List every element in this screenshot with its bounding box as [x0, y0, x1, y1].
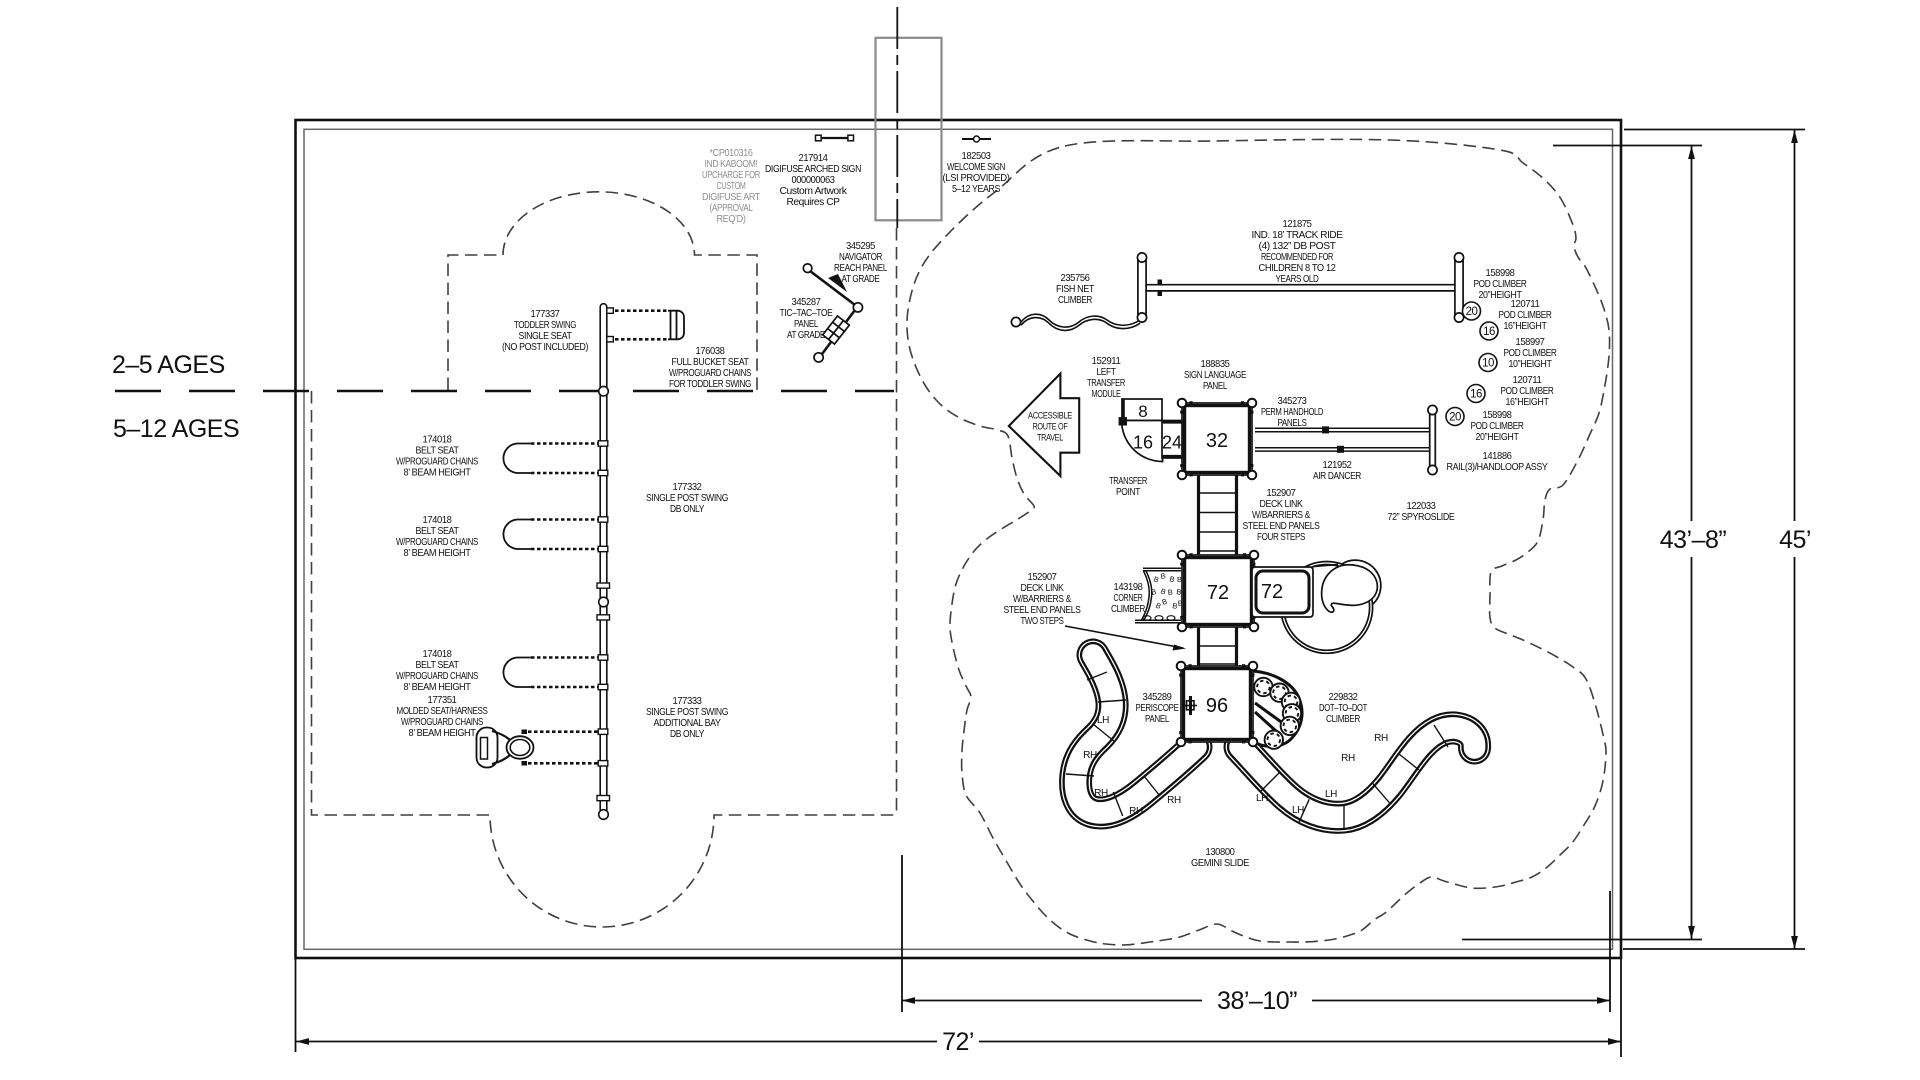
svg-text:TIC–TAC–TOE: TIC–TAC–TOE: [780, 308, 833, 319]
svg-text:2–5 AGES: 2–5 AGES: [112, 351, 225, 379]
svg-text:8’ BEAM HEIGHT: 8’ BEAM HEIGHT: [409, 728, 477, 739]
svg-text:RH: RH: [1374, 733, 1388, 744]
svg-text:217914: 217914: [799, 153, 829, 164]
svg-text:DECK LINK: DECK LINK: [1260, 499, 1303, 510]
svg-text:16”HEIGHT: 16”HEIGHT: [1504, 321, 1548, 332]
svg-text:ADDITIONAL BAY: ADDITIONAL BAY: [654, 718, 721, 729]
svg-text:16”HEIGHT: 16”HEIGHT: [1506, 397, 1550, 408]
svg-text:32: 32: [1206, 430, 1228, 452]
svg-text:PANEL: PANEL: [1145, 714, 1170, 725]
svg-text:FOR TODDLER SWING: FOR TODDLER SWING: [669, 379, 751, 390]
svg-text:POD CLIMBER: POD CLIMBER: [1504, 348, 1558, 359]
svg-text:YEARS OLD: YEARS OLD: [1276, 274, 1319, 285]
svg-text:RH: RH: [1083, 750, 1097, 761]
svg-text:W/BARRIERS &: W/BARRIERS &: [1013, 594, 1071, 605]
svg-text:POD CLIMBER: POD CLIMBER: [1474, 279, 1528, 290]
svg-text:PANEL: PANEL: [794, 319, 819, 330]
svg-text:FULL BUCKET SEAT: FULL BUCKET SEAT: [672, 357, 750, 368]
svg-text:143198: 143198: [1114, 582, 1144, 593]
svg-text:8’ BEAM HEIGHT: 8’ BEAM HEIGHT: [404, 468, 472, 479]
svg-text:188835: 188835: [1201, 359, 1231, 370]
svg-text:Custom Artwork: Custom Artwork: [780, 186, 848, 197]
svg-text:SINGLE POST SWING: SINGLE POST SWING: [646, 707, 728, 718]
svg-text:158998: 158998: [1483, 410, 1513, 421]
svg-text:000000063: 000000063: [792, 175, 836, 186]
svg-text:5–12 YEARS: 5–12 YEARS: [952, 184, 1000, 195]
svg-text:W/PROGUARD CHAINS: W/PROGUARD CHAINS: [396, 671, 478, 682]
svg-text:NAVIGATOR: NAVIGATOR: [839, 252, 883, 263]
svg-text:16: 16: [1470, 389, 1482, 401]
svg-text:152911: 152911: [1092, 356, 1122, 367]
svg-text:RAIL(3)/HANDLOOP ASSY: RAIL(3)/HANDLOOP ASSY: [1447, 462, 1548, 473]
svg-text:20: 20: [1449, 412, 1461, 424]
svg-text:B: B: [1167, 588, 1173, 597]
svg-text:TRANSFER: TRANSFER: [1087, 378, 1126, 389]
svg-text:SINGLE POST SWING: SINGLE POST SWING: [646, 493, 728, 504]
svg-text:SIGN LANGUAGE: SIGN LANGUAGE: [1184, 370, 1246, 381]
svg-text:5–12 AGES: 5–12 AGES: [113, 415, 239, 443]
svg-text:177332: 177332: [673, 482, 703, 493]
svg-text:121952: 121952: [1323, 460, 1353, 471]
svg-text:POD CLIMBER: POD CLIMBER: [1471, 421, 1525, 432]
svg-text:345289: 345289: [1143, 692, 1173, 703]
svg-text:CLIMBER: CLIMBER: [1058, 295, 1093, 306]
svg-text:DIGIFUSE ART: DIGIFUSE ART: [702, 192, 761, 203]
svg-text:ACCESSIBLE: ACCESSIBLE: [1028, 411, 1072, 422]
svg-text:MOLDED SEAT/HARNESS: MOLDED SEAT/HARNESS: [397, 706, 488, 717]
svg-text:RH: RH: [1341, 753, 1355, 764]
svg-text:AT GRADE: AT GRADE: [842, 274, 880, 285]
svg-text:RH: RH: [1094, 788, 1108, 799]
svg-text:20: 20: [1466, 306, 1478, 318]
svg-text:IND. 18’ TRACK RIDE: IND. 18’ TRACK RIDE: [1252, 230, 1343, 241]
svg-text:FISH NET: FISH NET: [1056, 284, 1095, 295]
svg-text:16: 16: [1133, 433, 1153, 453]
svg-text:ROUTE OF: ROUTE OF: [1033, 422, 1068, 433]
svg-text:72” SPYROSLIDE: 72” SPYROSLIDE: [1388, 512, 1455, 523]
svg-text:TODDLER SWING: TODDLER SWING: [514, 320, 576, 331]
svg-text:POINT: POINT: [1116, 487, 1141, 498]
svg-text:IND KABOOM!: IND KABOOM!: [705, 159, 758, 170]
svg-text:PANEL: PANEL: [1203, 381, 1228, 392]
svg-text:MODULE: MODULE: [1092, 389, 1121, 400]
svg-text:CHILDREN 8 TO 12: CHILDREN 8 TO 12: [1259, 263, 1337, 274]
svg-text:LH: LH: [1256, 793, 1268, 804]
svg-text:141886: 141886: [1483, 451, 1513, 462]
svg-text:177337: 177337: [531, 309, 561, 320]
svg-text:(4) 132” DB POST: (4) 132” DB POST: [1259, 241, 1337, 252]
svg-text:W/BARRIERS &: W/BARRIERS &: [1252, 510, 1310, 521]
svg-text:158997: 158997: [1516, 337, 1546, 348]
svg-text:72’: 72’: [942, 1028, 974, 1056]
svg-text:38’–10”: 38’–10”: [1217, 987, 1297, 1015]
svg-text:345295: 345295: [846, 241, 876, 252]
svg-text:8: 8: [1138, 402, 1147, 421]
svg-text:W/PROGUARD CHAINS: W/PROGUARD CHAINS: [396, 457, 478, 468]
svg-text:REACH PANEL: REACH PANEL: [834, 263, 888, 274]
svg-text:10”HEIGHT: 10”HEIGHT: [1509, 359, 1553, 370]
svg-text:WELCOME SIGN: WELCOME SIGN: [947, 162, 1005, 173]
svg-text:174018: 174018: [423, 649, 453, 660]
svg-text:8’ BEAM HEIGHT: 8’ BEAM HEIGHT: [404, 682, 472, 693]
svg-text:BELT SEAT: BELT SEAT: [416, 446, 460, 457]
svg-text:TWO STEPS: TWO STEPS: [1021, 616, 1064, 627]
svg-text:PANELS: PANELS: [1278, 418, 1307, 429]
svg-text:8’ BEAM HEIGHT: 8’ BEAM HEIGHT: [404, 548, 472, 559]
svg-text:(APPROVAL: (APPROVAL: [710, 203, 754, 214]
svg-text:UPCHARGE FOR: UPCHARGE FOR: [702, 170, 761, 181]
svg-text:174018: 174018: [423, 515, 453, 526]
svg-text:152907: 152907: [1267, 488, 1297, 499]
svg-text:235756: 235756: [1061, 273, 1091, 284]
svg-text:72: 72: [1261, 581, 1283, 603]
svg-text:POD CLIMBER: POD CLIMBER: [1499, 310, 1553, 321]
svg-text:RH: RH: [1167, 795, 1181, 806]
svg-text:176038: 176038: [696, 346, 726, 357]
svg-text:182503: 182503: [962, 151, 992, 162]
svg-text:CUSTOM: CUSTOM: [717, 181, 746, 192]
svg-text:DB ONLY: DB ONLY: [670, 504, 704, 515]
svg-text:RECOMMENDED FOR: RECOMMENDED FOR: [1261, 252, 1334, 263]
svg-text:(NO POST INCLUDED): (NO POST INCLUDED): [502, 342, 588, 353]
svg-text:POD CLIMBER: POD CLIMBER: [1501, 386, 1555, 397]
svg-text:LH: LH: [1097, 715, 1109, 726]
svg-text:BELT SEAT: BELT SEAT: [416, 660, 460, 671]
svg-text:TRANSFER: TRANSFER: [1109, 476, 1148, 487]
svg-text:16: 16: [1483, 326, 1495, 338]
svg-text:FOUR STEPS: FOUR STEPS: [1257, 532, 1305, 543]
svg-text:LEFT: LEFT: [1097, 367, 1117, 378]
svg-text:CORNER: CORNER: [1114, 593, 1144, 604]
svg-text:120711: 120711: [1513, 375, 1543, 386]
svg-text:LH: LH: [1292, 805, 1304, 816]
svg-text:STEEL END PANELS: STEEL END PANELS: [1243, 521, 1320, 532]
svg-text:345273: 345273: [1278, 396, 1308, 407]
svg-text:72: 72: [1207, 582, 1229, 604]
svg-text:W/PROGUARD CHAINS: W/PROGUARD CHAINS: [669, 368, 751, 379]
svg-text:Requires CP: Requires CP: [787, 197, 840, 208]
svg-text:RH: RH: [1129, 806, 1143, 817]
svg-text:CLIMBER: CLIMBER: [1326, 714, 1361, 725]
svg-text:AT GRADE: AT GRADE: [787, 330, 825, 341]
svg-text:SINGLE SEAT: SINGLE SEAT: [519, 331, 573, 342]
svg-text:177333: 177333: [673, 696, 703, 707]
svg-text:BELT SEAT: BELT SEAT: [416, 526, 460, 537]
svg-text:DB ONLY: DB ONLY: [670, 729, 704, 740]
svg-text:229832: 229832: [1329, 692, 1359, 703]
svg-text:122033: 122033: [1407, 501, 1437, 512]
svg-text:177351: 177351: [428, 695, 458, 706]
svg-text:158998: 158998: [1486, 268, 1516, 279]
svg-text:120711: 120711: [1511, 299, 1541, 310]
svg-text:PERM HANDHOLD: PERM HANDHOLD: [1261, 407, 1323, 418]
svg-text:DOT–TO–DOT: DOT–TO–DOT: [1319, 703, 1368, 714]
svg-text:20”HEIGHT: 20”HEIGHT: [1476, 432, 1520, 443]
svg-text:43’–8”: 43’–8”: [1660, 526, 1727, 554]
svg-text:TRAVEL: TRAVEL: [1037, 433, 1063, 444]
svg-text:PERISCOPE: PERISCOPE: [1136, 703, 1179, 714]
svg-text:CLIMBER: CLIMBER: [1111, 604, 1146, 615]
svg-text:*CP010316: *CP010316: [710, 148, 754, 159]
svg-text:W/PROGUARD CHAINS: W/PROGUARD CHAINS: [396, 537, 478, 548]
svg-text:LH: LH: [1325, 789, 1337, 800]
svg-text:REQ’D): REQ’D): [717, 214, 746, 225]
svg-text:45’: 45’: [1779, 526, 1811, 554]
svg-text:152907: 152907: [1028, 572, 1058, 583]
svg-text:STEEL END PANELS: STEEL END PANELS: [1004, 605, 1081, 616]
svg-text:(LSI PROVIDED): (LSI PROVIDED): [943, 173, 1010, 184]
svg-text:AIR DANCER: AIR DANCER: [1313, 471, 1362, 482]
svg-text:174018: 174018: [423, 435, 453, 446]
svg-text:24: 24: [1162, 433, 1182, 453]
svg-text:121875: 121875: [1283, 219, 1313, 230]
svg-text:130800: 130800: [1206, 847, 1236, 858]
svg-text:W/PROGUARD CHAINS: W/PROGUARD CHAINS: [401, 717, 483, 728]
svg-text:345287: 345287: [792, 297, 822, 308]
svg-text:10: 10: [1482, 358, 1494, 370]
svg-text:96: 96: [1206, 695, 1228, 717]
svg-text:DIGIFUSE ARCHED SIGN: DIGIFUSE ARCHED SIGN: [765, 164, 861, 175]
svg-text:GEMINI SLIDE: GEMINI SLIDE: [1191, 858, 1249, 869]
svg-text:DECK LINK: DECK LINK: [1021, 583, 1064, 594]
